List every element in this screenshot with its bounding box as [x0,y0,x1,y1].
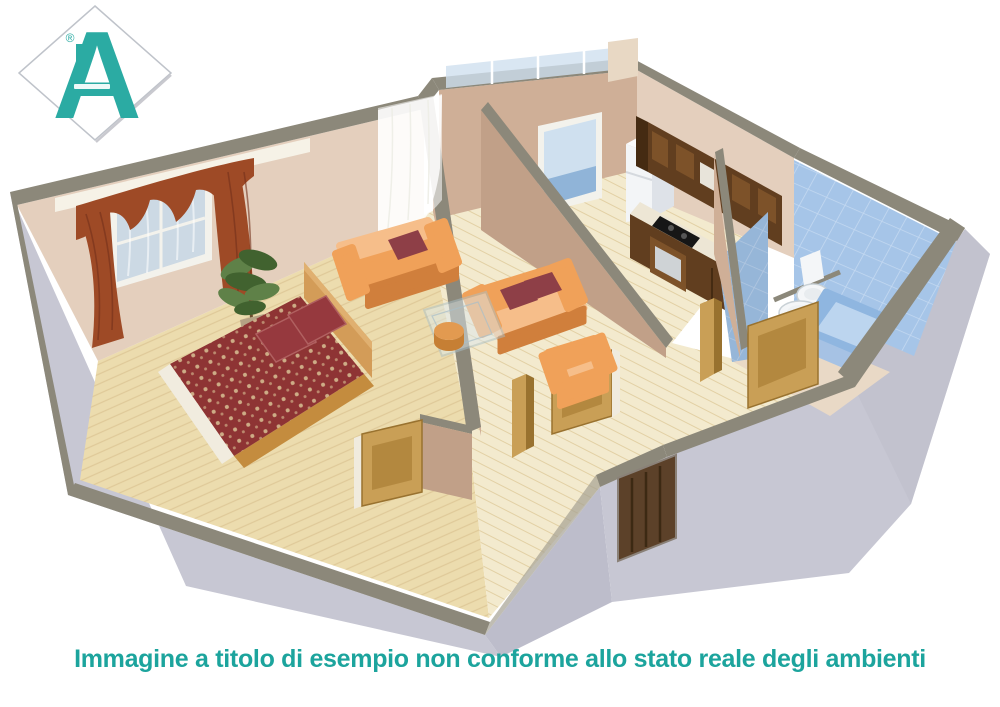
door-jamb [354,435,362,509]
upper-cabinet-side [636,116,648,172]
stool-top [434,322,464,340]
bathroom-door-thickness [714,298,722,374]
logo-stub [76,44,85,62]
burner [681,233,687,239]
agency-logo: A ® [12,0,182,152]
hall-door-edge [512,374,534,458]
logo-micro-text [74,84,110,89]
door-leaf-edge [512,374,526,458]
placeholder-image: A ® Immagine a titolo di esempio non con… [0,0,1000,707]
hall-stub-wall [420,422,472,500]
bathroom-door-edge-leaf [700,298,714,382]
caption: Immagine a titolo di esempio non conform… [0,645,1000,674]
balcony-pillar [608,38,638,82]
burner [668,225,674,231]
logo-letter: A [52,7,142,145]
door-thickness [526,374,534,450]
logo-registered-icon: ® [66,31,75,45]
